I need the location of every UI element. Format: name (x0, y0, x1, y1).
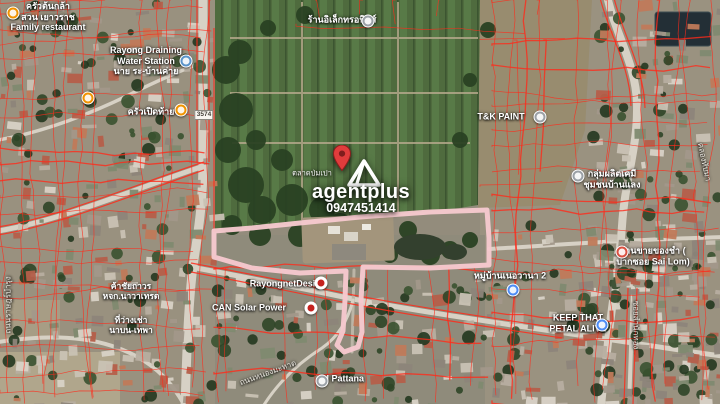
label-soi-samnak-thong[interactable]: ซอยสำนักทอง (631, 301, 640, 350)
satellite-map: ครัวต้นกล้าสวน เยาวราชFamily restaurantR… (0, 0, 720, 404)
label-family-restaurant[interactable]: ครัวต้นกล้าสวน เยาวราชFamily restaurant (10, 1, 85, 33)
restaurant-icon[interactable] (82, 92, 95, 105)
community-icon[interactable] (572, 170, 585, 183)
label-thi-wang-chao[interactable]: ที่ว่างเช่านาบน-เทพา (109, 315, 153, 335)
label-village-nervana[interactable]: หมู่บ้านเนอวานา 2 (474, 271, 546, 282)
label-krua-perd-tai[interactable]: ครัวเปิดท้าย (128, 107, 175, 118)
map-labels-layer: ครัวต้นกล้าสวน เยาวราชFamily restaurantR… (0, 0, 720, 404)
route-shield: 3574 (194, 110, 213, 120)
shop-icon[interactable] (616, 246, 629, 259)
restaurant-icon[interactable] (175, 104, 188, 117)
label-talad-pom-pao[interactable]: ตลาดป่มเปา (292, 170, 332, 179)
label-thanon-nong-mahat[interactable]: ถนนหนองมะหาด (238, 358, 297, 387)
label-thanon-rat-bamrung[interactable]: ถนนราษฎร์บำรุง (3, 276, 12, 333)
label-rayong-draining-station[interactable]: Rayong DrainingWater Stationนาย ระ-บ้านค… (110, 45, 182, 77)
label-community-group[interactable]: กลุ่มผลิตเคมีชุมชนบ้านแลง (584, 168, 641, 189)
rayongnet-icon[interactable] (315, 277, 328, 290)
place-icon[interactable] (316, 375, 329, 388)
restaurant-icon[interactable] (7, 7, 20, 20)
solar-icon[interactable] (305, 302, 318, 315)
label-khlong-thap-ma[interactable]: คลองทับมา (695, 142, 712, 182)
home-icon[interactable] (507, 284, 520, 297)
water-station-icon[interactable] (180, 55, 193, 68)
place-icon[interactable] (362, 15, 375, 28)
flower-shop-icon[interactable] (596, 319, 609, 332)
label-kha-chai-thaworn[interactable]: ค้าชัยถาวรหจก.นาวาเทรด (103, 281, 160, 301)
label-can-solar-power[interactable]: CAN Solar Power (212, 303, 286, 314)
label-tk-paint[interactable]: T&K PAINT (477, 112, 524, 123)
place-icon[interactable] (534, 111, 547, 124)
